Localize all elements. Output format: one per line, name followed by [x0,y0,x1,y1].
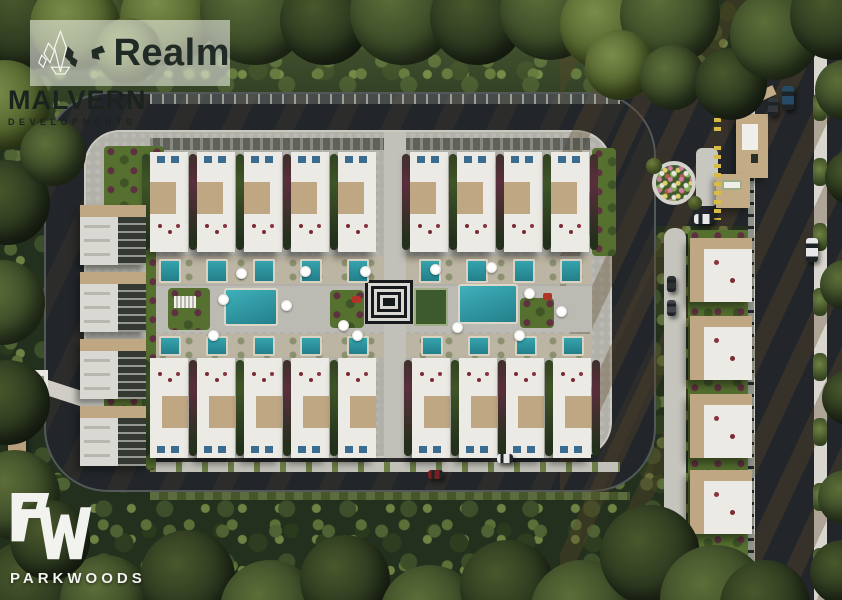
parked-car [667,300,676,316]
terrace-furniture [215,378,219,382]
median-planter-shrub [813,418,827,446]
hedge-shrub [590,154,598,250]
amenity-lawn-east [520,298,554,328]
tan-roof-section [704,316,752,327]
hedge-shrub [451,360,459,456]
villa [150,358,188,458]
terrace-furniture [176,372,180,376]
terrace-furniture [356,378,360,382]
terrace-furniture [299,372,303,376]
tan-roof-section [424,396,450,428]
terrace-furniture [430,378,434,382]
tan-roof-section [244,182,270,214]
terrace-furniture [730,356,735,361]
parked-car [667,276,676,292]
amenity-lawn-west [168,288,210,330]
skylight-window [431,156,439,163]
apartment-block [80,339,146,399]
private-pool [466,259,488,283]
skylight-window [359,446,367,453]
hedge-shrub [236,154,244,250]
skylight-window [251,446,259,453]
perimeter-hedge [150,492,630,500]
terrace-furniture [158,224,162,228]
terrace-furniture [730,510,735,515]
terrace-furniture [346,372,350,376]
terrace-furniture [428,230,432,234]
private-pool [562,336,584,356]
terrace-furniture [569,230,573,234]
villa [504,152,542,252]
villa [291,358,329,458]
facade-line [84,440,110,443]
facade-line [84,454,110,457]
villa [244,152,282,252]
skylight-window [480,446,488,453]
terrace-furniture [346,224,350,228]
developer-logo: MALVERN DEVELOPMENTS [8,86,147,127]
facade-line [84,359,110,362]
east-building [690,238,752,302]
gate-logo-mark [751,154,758,163]
red-car [428,470,443,479]
terrace-furniture [577,224,581,228]
hedge-shrub [330,154,338,250]
facade-line [84,426,110,429]
terrace-furniture [522,230,526,234]
gatehouse-courtyard [742,124,758,150]
villa [150,152,188,252]
terrace-furniture [168,230,172,234]
tan-roof-section [704,238,752,249]
realm-mark-icon [90,43,107,63]
tan-roof-section [209,396,235,428]
tan-roof-section [504,182,530,214]
tan-roof-section [457,182,483,214]
skylight-window [171,156,179,163]
terrace-furniture [730,434,735,439]
playground-equipment [352,296,361,303]
skylight-window [572,156,580,163]
pool-umbrella [430,264,441,275]
tan-roof-section [350,396,376,428]
skylight-window [433,446,441,453]
skylight-window [265,446,273,453]
tan-roof-section [80,205,146,217]
terrace-furniture [262,230,266,234]
villa [244,358,282,458]
villa [457,152,495,252]
private-pool [560,259,582,283]
pool-umbrella [524,288,535,299]
private-pool [513,259,535,283]
tan-roof-section [410,182,436,214]
pool-umbrella [281,300,292,311]
balcony-section [118,217,146,265]
terrace-furniture [270,224,274,228]
terrace-furniture [223,372,227,376]
hedge-shrub [449,154,457,250]
terrace-furniture [176,224,180,228]
median-planter-shrub [813,353,827,381]
hedge-shrub [402,154,410,250]
ornamental-tree [688,196,702,210]
tan-roof-section [551,182,577,214]
parkwoods-monogram [8,488,94,571]
skylight-window [558,156,566,163]
tan-roof-section [150,182,176,214]
south-planting-strip [150,462,620,472]
tan-roof-section [197,182,223,214]
terrace-furniture [485,372,489,376]
white-car [806,238,818,262]
white-car [694,214,714,224]
terrace-furniture [561,372,565,376]
garden-pergola [174,296,196,308]
skylight-window [298,156,306,163]
terrace-furniture [512,224,516,228]
hedge-shrub [404,360,412,456]
tan-roof-section [690,238,704,302]
terrace-furniture [579,372,583,376]
terrace-furniture [317,372,321,376]
crystal-icon [38,25,83,81]
tan-roof-section [690,316,704,380]
pool-umbrella [208,330,219,341]
balcony-section [118,351,146,399]
terrace-furniture [438,372,442,376]
hedge-shrub [189,360,197,456]
private-pool [468,336,490,356]
hedge-shrub [283,154,291,250]
pw-monogram-icon [8,488,94,566]
terrace-furniture [252,372,256,376]
entrance-gatehouse-south [716,174,750,208]
facade-line [84,373,110,376]
skylight-window [359,156,367,163]
villa [197,152,235,252]
pool-umbrella [352,330,363,341]
tan-roof-section [565,396,591,428]
terrace-furniture [270,372,274,376]
terrace-furniture [730,278,735,283]
pool-umbrella [486,262,497,273]
terrace-furniture [436,224,440,228]
white-car [497,454,513,463]
crosswalk-south [714,146,721,220]
private-pool [421,336,443,356]
skylight-window [560,446,568,453]
skylight-window [345,446,353,453]
tan-roof-section [471,396,497,428]
terrace-furniture [262,378,266,382]
terrace-furniture [252,224,256,228]
skylight-window [513,446,521,453]
balcony-section [118,284,146,332]
east-building [690,394,752,458]
hedge-shrub [283,360,291,456]
blue-car [782,86,794,110]
maze-plaza-feature [383,298,395,306]
villa [338,358,376,458]
terrace-furniture [571,378,575,382]
apartment-block [80,272,146,332]
sports-court [414,288,448,326]
private-pool [253,336,275,356]
tan-roof-section [303,396,329,428]
skylight-window [466,446,474,453]
terrace-furniture [714,416,719,421]
private-pool [300,336,322,356]
aerial-masterplan-render: Realm MALVERN DEVELOPMENTS PARKWOODS [0,0,842,600]
private-pool [159,336,181,356]
villa [338,152,376,252]
tree-canopy [20,120,86,186]
developer-subtitle: DEVELOPMENTS [8,117,147,127]
tan-roof-section [291,182,317,214]
pool-umbrella [338,320,349,331]
terrace-furniture [299,224,303,228]
terrace-furniture [309,230,313,234]
villa [551,152,589,252]
skylight-window [419,446,427,453]
villa [459,358,497,458]
terrace-furniture [467,372,471,376]
hedge-shrub [592,360,600,456]
tan-roof-section [256,396,282,428]
terrace-furniture [475,230,479,234]
villa [506,358,544,458]
tan-roof-section [80,339,146,351]
terrace-furniture [420,372,424,376]
villa [197,358,235,458]
skylight-window [265,156,273,163]
tan-roof-section [80,272,146,284]
facade-line [84,292,110,295]
pool-umbrella [218,294,229,305]
terrace-furniture [205,224,209,228]
pool-umbrella [360,266,371,277]
villa [291,152,329,252]
villa [410,152,448,252]
skylight-window [478,156,486,163]
skylight-window [204,156,212,163]
dark-car [768,98,778,116]
facade-line [84,253,110,256]
terrace-furniture [530,224,534,228]
skylight-window [417,156,425,163]
terrace-furniture [559,224,563,228]
facade-line [84,320,110,323]
terrace-furniture [364,372,368,376]
terrace-furniture [477,378,481,382]
skylight-window [157,446,165,453]
terrace-furniture [418,224,422,228]
terrace-furniture [483,224,487,228]
terrace-furniture [223,224,227,228]
realm-logo-panel: Realm [30,20,230,86]
carport-pergolas [150,138,590,150]
terrace-furniture [356,230,360,234]
hedge-shrub [236,360,244,456]
project-name: PARKWOODS [10,570,146,587]
villa [412,358,450,458]
hedge-shrub [496,154,504,250]
terrace-furniture [317,224,321,228]
pool-umbrella [452,322,463,333]
skylight-window [251,156,259,163]
tan-roof-section [690,394,704,458]
skylight-window [525,156,533,163]
terrace-furniture [158,372,162,376]
hedge-shrub [498,360,506,456]
skylight-window [218,156,226,163]
skylight-window [204,446,212,453]
balcony-section [118,418,146,466]
terrace-furniture [714,260,719,265]
terrace-furniture [205,372,209,376]
skylight-window [464,156,472,163]
skylight-window [171,446,179,453]
skylight-window [345,156,353,163]
perimeter-fence [150,94,620,104]
tan-roof-section [704,470,752,481]
skylight-window [511,156,519,163]
entrance-gatehouse-north [736,114,768,178]
hedge-shrub [545,360,553,456]
hedge-shrub [189,154,197,250]
skylight-window [527,446,535,453]
tan-roof-section [162,396,188,428]
skylight-window [312,156,320,163]
terrace-furniture [215,230,219,234]
pool-umbrella [236,268,247,279]
terrace-furniture [465,224,469,228]
playground-equipment [543,293,552,300]
terrace-furniture [364,224,368,228]
skylight-window [157,156,165,163]
pool-umbrella [556,306,567,317]
ornamental-tree [646,158,662,174]
terrace-furniture [309,378,313,382]
east-building [690,470,752,534]
terrace-furniture [714,338,719,343]
terrace-furniture [524,378,528,382]
skylight-window [298,446,306,453]
private-pool [206,259,228,283]
tan-roof-section [518,396,544,428]
terrace-furniture [168,378,172,382]
tan-roof-section [704,394,752,405]
facade-line [84,306,110,309]
facade-line [84,387,110,390]
terrace-furniture [514,372,518,376]
tan-roof-section [338,182,364,214]
skylight-window [218,446,226,453]
realm-wordmark: Realm [113,34,230,72]
gatehouse-courtyard [722,180,742,190]
terrace-furniture [532,372,536,376]
skylight-window [574,446,582,453]
private-pool [253,259,275,283]
hedge-shrub [330,360,338,456]
communal-pool-west [224,288,278,326]
pool-umbrella [300,266,311,277]
pool-umbrella [514,330,525,341]
apartment-block [80,406,146,466]
private-pool [159,259,181,283]
developer-name: MALVERN [8,86,147,114]
facade-line [84,239,110,242]
facade-line [84,225,110,228]
communal-pool-east [458,284,518,324]
tan-roof-section [690,470,704,534]
apartment-block [80,205,146,265]
villa [553,358,591,458]
hedge-shrub [543,154,551,250]
tan-roof-section [80,406,146,418]
east-building [690,316,752,380]
skylight-window [312,446,320,453]
terrace-furniture [714,492,719,497]
